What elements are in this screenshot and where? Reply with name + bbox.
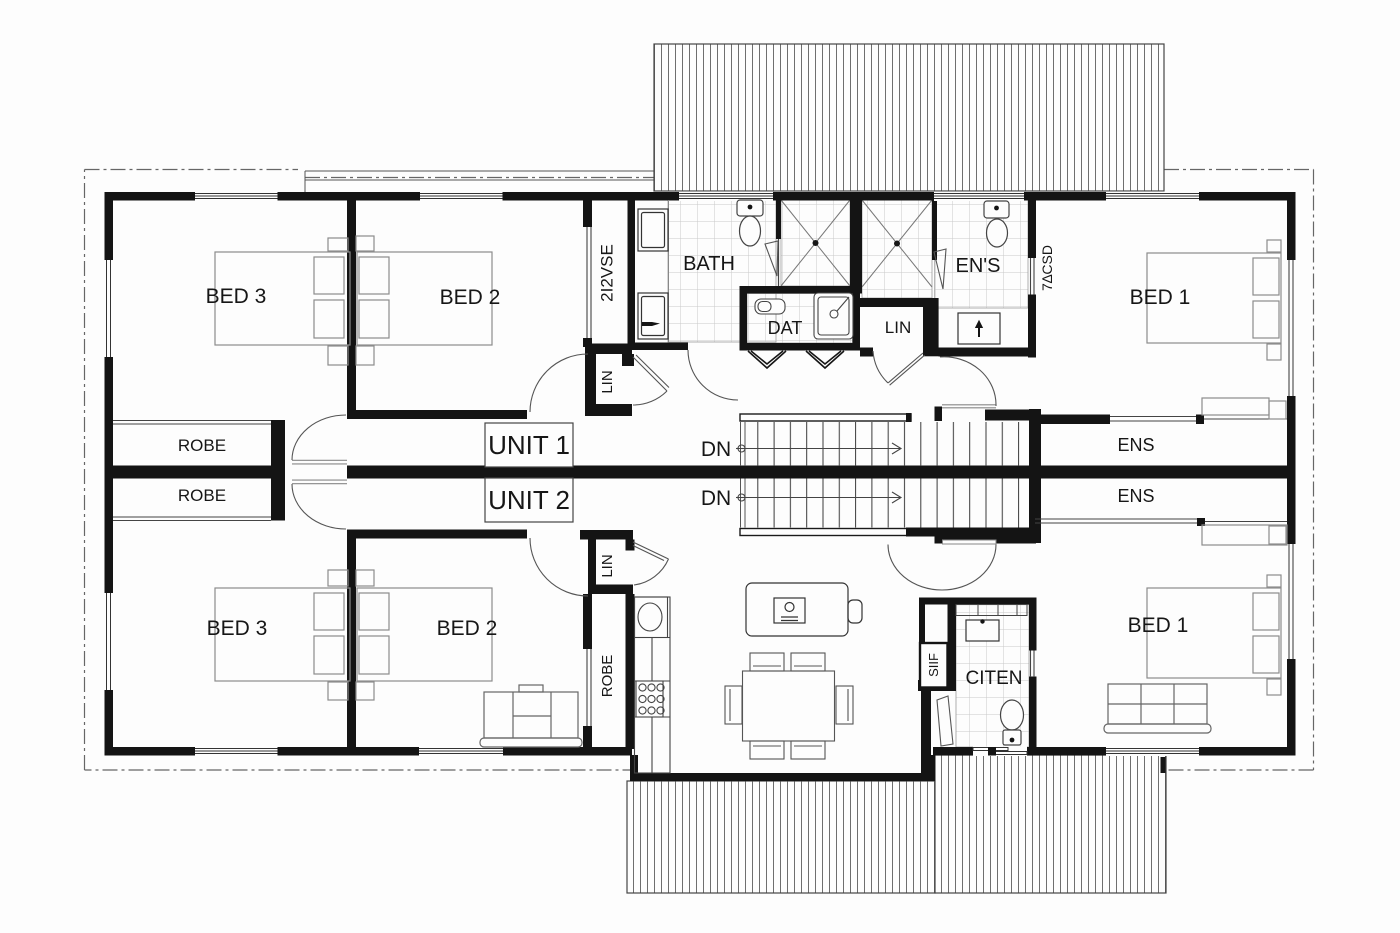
svg-text:LIN: LIN: [599, 370, 616, 393]
svg-text:BED 3: BED 3: [207, 617, 268, 640]
svg-text:ENS: ENS: [1117, 486, 1154, 506]
svg-text:LIN: LIN: [599, 554, 616, 577]
svg-text:BATH: BATH: [683, 253, 735, 275]
svg-text:DN: DN: [701, 438, 731, 461]
svg-text:ENS: ENS: [1117, 435, 1154, 455]
svg-text:BED 3: BED 3: [206, 285, 267, 308]
svg-text:DN: DN: [701, 487, 731, 510]
svg-text:ROBE: ROBE: [178, 486, 226, 505]
svg-text:UNIT 2: UNIT 2: [488, 485, 570, 515]
svg-text:BED 2: BED 2: [440, 286, 501, 309]
svg-text:CITEN: CITEN: [966, 668, 1023, 689]
svg-text:2I2VSE: 2I2VSE: [598, 244, 617, 302]
svg-text:LIN: LIN: [885, 318, 911, 337]
svg-text:DAT: DAT: [768, 318, 803, 338]
svg-text:ROBE: ROBE: [178, 436, 226, 455]
svg-text:BED 1: BED 1: [1128, 614, 1189, 637]
svg-text:ROBE: ROBE: [599, 655, 616, 698]
svg-text:EN'S: EN'S: [956, 255, 1001, 277]
svg-text:BED 2: BED 2: [437, 617, 498, 640]
svg-text:SIIF: SIIF: [926, 653, 941, 677]
svg-text:BED 1: BED 1: [1130, 286, 1191, 309]
svg-text:7∆CSD: 7∆CSD: [1039, 245, 1055, 291]
svg-text:UNIT 1: UNIT 1: [488, 430, 570, 460]
